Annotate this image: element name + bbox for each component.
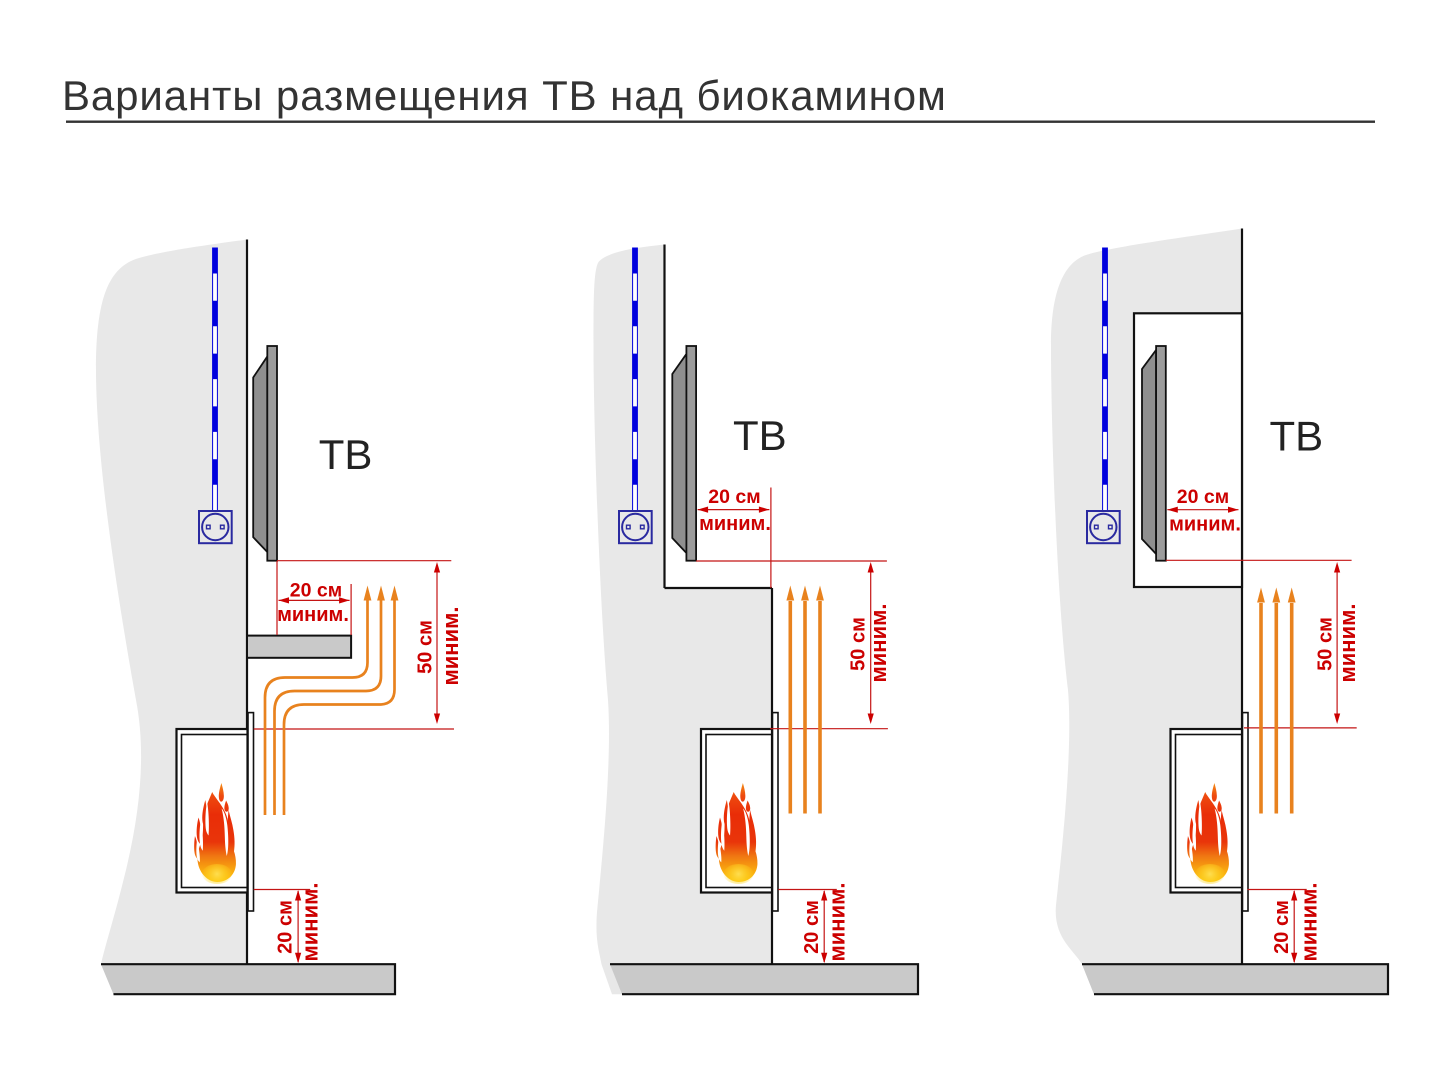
svg-text:Варианты размещения ТВ над био: Варианты размещения ТВ над биокамином [62,72,947,119]
svg-text:20 см: 20 см [290,580,342,602]
svg-text:миним.: миним. [699,513,771,535]
svg-text:20 см: 20 см [275,900,297,954]
svg-text:ТВ: ТВ [733,412,787,459]
svg-text:20 см: 20 см [1271,900,1293,954]
svg-text:миним.: миним. [277,604,349,626]
svg-text:миним.: миним. [438,607,463,686]
svg-text:20 см: 20 см [1177,486,1229,508]
svg-text:миним.: миним. [1169,514,1241,536]
svg-text:миним.: миним. [825,883,850,962]
svg-text:ТВ: ТВ [1270,413,1324,460]
svg-text:50 см: 50 см [1315,617,1337,671]
svg-text:миним.: миним. [866,604,891,683]
svg-text:миним.: миним. [1335,604,1360,683]
svg-text:миним.: миним. [1297,883,1322,962]
svg-text:миним.: миним. [298,883,323,962]
svg-text:ТВ: ТВ [319,431,373,478]
svg-text:20 см: 20 см [801,900,823,954]
svg-text:20 см: 20 см [708,486,760,508]
svg-text:50 см: 50 см [415,620,437,674]
